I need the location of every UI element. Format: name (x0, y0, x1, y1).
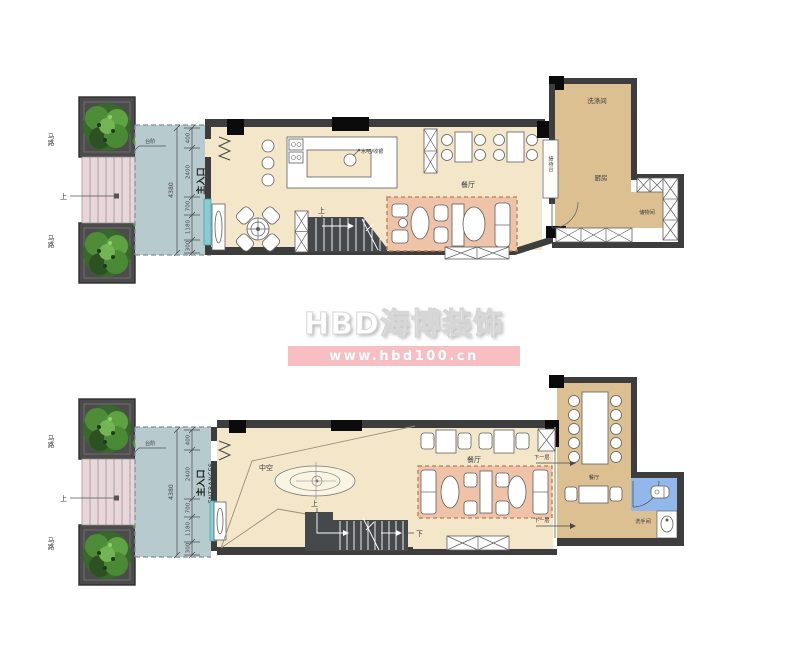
storage-label: 储物间 (639, 208, 655, 216)
bar-stool (262, 157, 274, 169)
lower-floor-plan: 中空 餐厅 (210, 375, 684, 555)
basin-icon (661, 516, 673, 532)
road-label: 马路 (46, 133, 54, 148)
dining-label: 餐厅 (461, 180, 475, 189)
stairs-up-label: 上 (318, 206, 325, 215)
bottom-cabinet (447, 536, 509, 550)
window-bench (214, 502, 226, 540)
steps-note: 台阶 (145, 137, 156, 145)
bar-label: 水吧/收银 (361, 147, 384, 155)
dim-total: 4380 (168, 182, 175, 198)
kitchen-label: 厨房 (595, 173, 608, 182)
to-lower-label: 下一层 (534, 454, 550, 461)
dim-seg: 700 (186, 200, 192, 211)
upper-floor-plan: 接待台 水吧/收银 (204, 76, 684, 259)
column (229, 420, 246, 433)
tree-icon (79, 223, 135, 283)
dining-label: 餐厅 (467, 455, 481, 464)
void-label: 中空 (259, 463, 273, 472)
entrance-assembly-lower (46, 399, 215, 585)
outdoor-steps (82, 157, 135, 223)
watermark-brand: HBD海博装饰 (288, 299, 520, 343)
reception-label: 接待台 (548, 155, 554, 173)
lounge-area (418, 466, 552, 518)
tree-icon (79, 97, 135, 157)
column (227, 119, 244, 135)
dim-seg: 2400 (186, 164, 192, 179)
floorplan-sheet: 马路 马路 上 台阶 4380 (0, 0, 800, 656)
lounge-cabinet (445, 247, 509, 259)
sink-icon (344, 154, 356, 166)
stair-side-cabinet (295, 211, 308, 252)
toilet-icon (651, 486, 669, 498)
kitchen-floor (555, 84, 664, 228)
bar-stool (262, 174, 274, 186)
to-lower-label: 下一层 (534, 517, 550, 524)
bar-stool (262, 140, 274, 152)
washroom-label: 洗手间 (635, 517, 651, 525)
up-label: 上 (60, 192, 67, 201)
private-dining-label: 餐厅 (589, 473, 599, 481)
column (332, 117, 369, 131)
dim-seg: 300 (186, 240, 192, 251)
dim-seg: 400 (186, 132, 192, 143)
road-label: 马路 (46, 235, 54, 250)
dim-seg: 1180 (186, 219, 192, 234)
column (549, 375, 564, 388)
stairs-up-label: 上 (311, 499, 318, 508)
window-bench (212, 204, 225, 250)
stairs-down-label: 下 (416, 530, 423, 538)
watermark-url: www.hbd100.cn (288, 346, 520, 366)
column (331, 420, 362, 431)
laundry-label: 洗涤间 (587, 96, 607, 105)
reception-desk: 接待台 (543, 140, 558, 198)
lounge-area (387, 197, 517, 251)
window-strip (204, 199, 211, 245)
entrance-assembly-upper: 马路 马路 上 台阶 4380 (46, 97, 215, 283)
watermark: HBD海博装饰 www.hbd100.cn (288, 299, 520, 366)
